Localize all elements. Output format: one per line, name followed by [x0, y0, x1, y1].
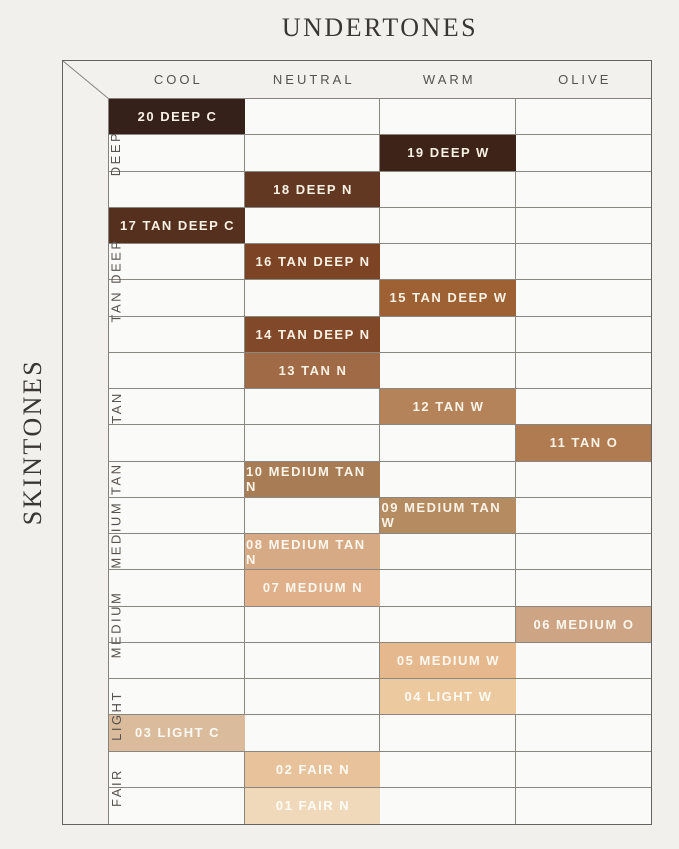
empty-cell [109, 353, 245, 389]
foundation-shade-chart: UNDERTONES SKINTONES COOLNEUTRALWARMOLIV… [0, 0, 679, 849]
empty-cell [380, 534, 516, 570]
shade-cell-17-tan-deep-c: 17 TAN DEEP C [109, 208, 245, 244]
column-header-cool: COOL [109, 61, 245, 98]
empty-cell [516, 570, 652, 606]
column-header-olive: OLIVE [516, 61, 652, 98]
undertone-column-headers: COOLNEUTRALWARMOLIVE [109, 61, 651, 99]
empty-cell [109, 135, 245, 171]
shade-grid: 20 DEEP C19 DEEP W18 DEEP N17 TAN DEEP C… [109, 99, 651, 824]
empty-cell [516, 280, 652, 316]
empty-cell [516, 715, 652, 751]
diagonal-divider-line [63, 61, 109, 99]
empty-cell [516, 353, 652, 389]
shade-cell-04-light-w: 04 LIGHT W [380, 679, 516, 715]
empty-cell [516, 244, 652, 280]
shade-cell-06-medium-o: 06 MEDIUM O [516, 607, 652, 643]
shade-cell-14-tan-deep-n: 14 TAN DEEP N [245, 317, 381, 353]
empty-cell [380, 715, 516, 751]
empty-cell [245, 607, 381, 643]
row-group-label: DEEP [109, 131, 124, 176]
empty-cell [380, 425, 516, 461]
empty-cell [109, 643, 245, 679]
shade-cell-03-light-c: 03 LIGHT C [109, 715, 245, 751]
empty-cell [380, 752, 516, 788]
undertones-axis-title: UNDERTONES [108, 13, 652, 43]
empty-cell [109, 570, 245, 606]
empty-cell [109, 752, 245, 788]
empty-cell [516, 752, 652, 788]
empty-cell [109, 389, 245, 425]
shade-cell-01-fair-n: 01 FAIR N [245, 788, 381, 824]
empty-cell [245, 715, 381, 751]
skintones-axis-title: SKINTONES [18, 359, 48, 525]
shade-cell-11-tan-o: 11 TAN O [516, 425, 652, 461]
row-group-label: TAN [109, 391, 124, 424]
empty-cell [109, 534, 245, 570]
empty-cell [516, 462, 652, 498]
empty-cell [516, 208, 652, 244]
empty-cell [516, 788, 652, 824]
empty-cell [380, 317, 516, 353]
empty-cell [516, 135, 652, 171]
empty-cell [245, 99, 381, 135]
empty-cell [380, 172, 516, 208]
shade-cell-08-medium-tan-n: 08 MEDIUM TAN N [245, 534, 381, 570]
shade-cell-20-deep-c: 20 DEEP C [109, 99, 245, 135]
empty-cell [245, 208, 381, 244]
shade-cell-07-medium-n: 07 MEDIUM N [245, 570, 381, 606]
empty-cell [245, 679, 381, 715]
corner-diagonal-cell [63, 61, 109, 99]
empty-cell [109, 425, 245, 461]
empty-cell [516, 317, 652, 353]
empty-cell [380, 788, 516, 824]
empty-cell [516, 498, 652, 534]
empty-cell [380, 607, 516, 643]
empty-cell [516, 643, 652, 679]
empty-cell [109, 679, 245, 715]
row-group-label: LIGHT [109, 690, 124, 741]
empty-cell [380, 462, 516, 498]
row-group-label: MEDIUM [109, 591, 124, 659]
column-header-neutral: NEUTRAL [245, 61, 381, 98]
row-group-label: FAIR [109, 768, 124, 807]
shade-cell-02-fair-n: 02 FAIR N [245, 752, 381, 788]
empty-cell [380, 99, 516, 135]
shade-cell-12-tan-w: 12 TAN W [380, 389, 516, 425]
empty-cell [109, 280, 245, 316]
shade-cell-09-medium-tan-w: 09 MEDIUM TAN W [380, 498, 516, 534]
empty-cell [245, 389, 381, 425]
shade-cell-13-tan-n: 13 TAN N [245, 353, 381, 389]
shade-cell-15-tan-deep-w: 15 TAN DEEP W [380, 280, 516, 316]
empty-cell [516, 679, 652, 715]
empty-cell [245, 135, 381, 171]
shade-cell-05-medium-w: 05 MEDIUM W [380, 643, 516, 679]
shade-matrix-table: COOLNEUTRALWARMOLIVE DEEPTAN DEEPTANMEDI… [62, 60, 652, 825]
shade-cell-18-deep-n: 18 DEEP N [245, 172, 381, 208]
empty-cell [109, 498, 245, 534]
empty-cell [109, 244, 245, 280]
empty-cell [380, 208, 516, 244]
empty-cell [516, 172, 652, 208]
empty-cell [109, 607, 245, 643]
empty-cell [380, 353, 516, 389]
empty-cell [109, 172, 245, 208]
column-header-warm: WARM [380, 61, 516, 98]
empty-cell [245, 425, 381, 461]
row-group-label: TAN DEEP [109, 238, 124, 322]
shade-cell-19-deep-w: 19 DEEP W [380, 135, 516, 171]
empty-cell [380, 244, 516, 280]
row-group-label: MEDIUM TAN [109, 463, 124, 569]
empty-cell [245, 498, 381, 534]
empty-cell [245, 280, 381, 316]
empty-cell [516, 99, 652, 135]
empty-cell [109, 317, 245, 353]
empty-cell [380, 570, 516, 606]
empty-cell [516, 389, 652, 425]
empty-cell [245, 643, 381, 679]
empty-cell [516, 534, 652, 570]
skintone-group-labels: DEEPTAN DEEPTANMEDIUM TANMEDIUMLIGHTFAIR [63, 99, 109, 824]
shade-cell-10-medium-tan-n: 10 MEDIUM TAN N [245, 462, 381, 498]
empty-cell [109, 788, 245, 824]
shade-cell-16-tan-deep-n: 16 TAN DEEP N [245, 244, 381, 280]
empty-cell [109, 462, 245, 498]
